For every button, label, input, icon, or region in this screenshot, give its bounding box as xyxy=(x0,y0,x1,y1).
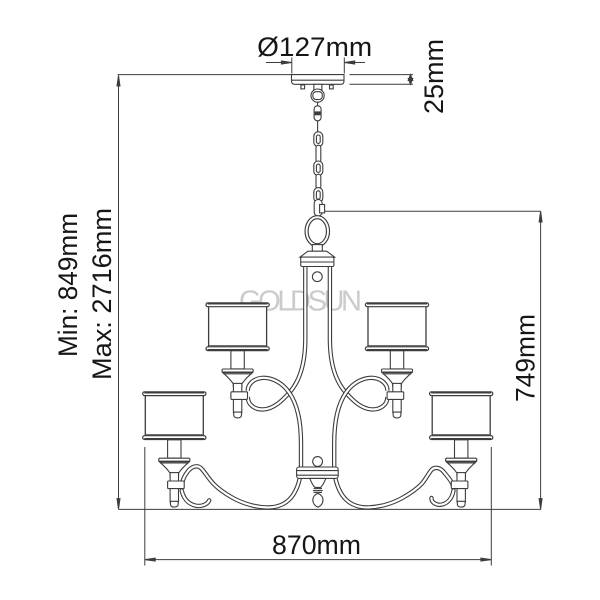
svg-text:749mm: 749mm xyxy=(511,314,541,402)
svg-text:Max: 2716mm: Max: 2716mm xyxy=(87,208,117,380)
svg-text:870mm: 870mm xyxy=(272,530,361,560)
svg-text:Ø127mm: Ø127mm xyxy=(257,32,372,62)
svg-text:25mm: 25mm xyxy=(419,39,449,114)
svg-text:Min: 849mm: Min: 849mm xyxy=(53,213,83,357)
